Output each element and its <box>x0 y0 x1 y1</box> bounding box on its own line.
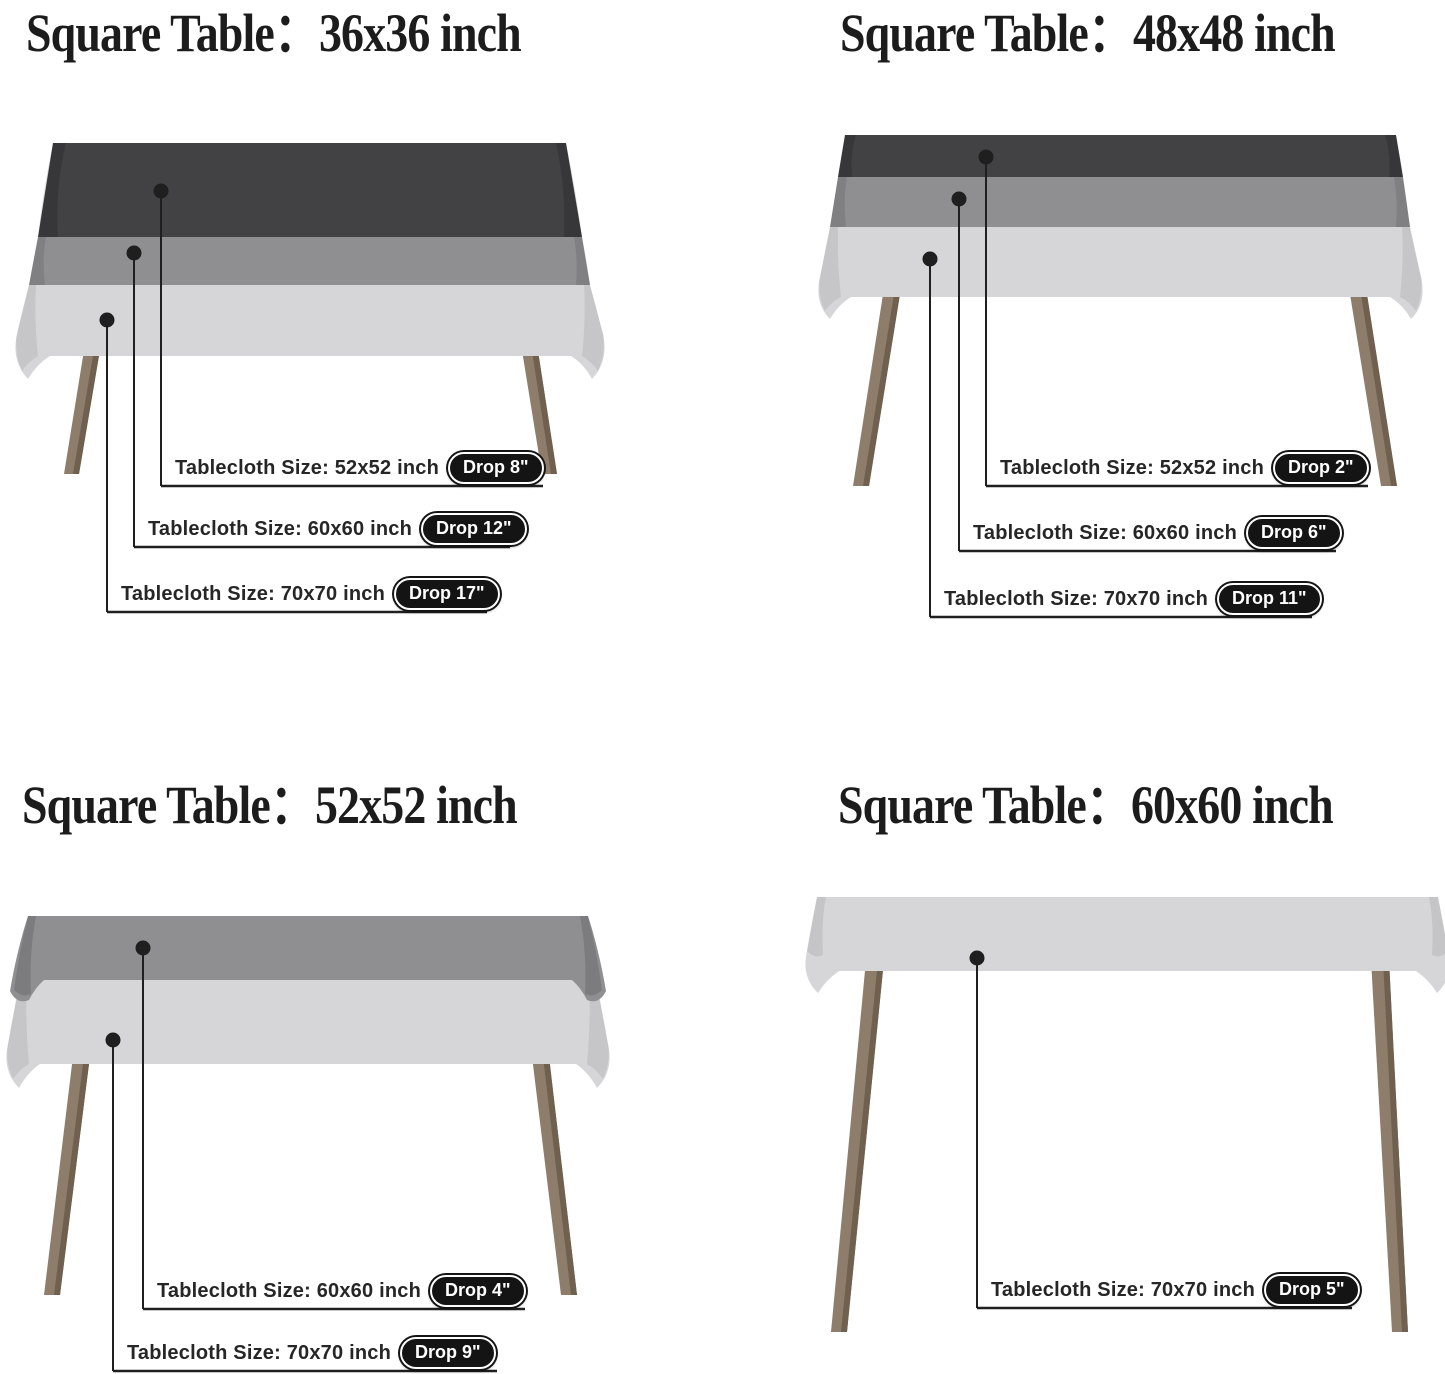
table-60x60 <box>805 897 1445 1332</box>
table-48x48 <box>818 135 1422 486</box>
drop-badge: Drop 2" <box>1273 452 1369 484</box>
callout-dot <box>106 1033 120 1047</box>
table-52x52 <box>6 916 609 1295</box>
tablecloth-size-text: Tablecloth Size: 60x60 inch <box>973 522 1237 545</box>
drop-badge: Drop 8" <box>448 452 544 484</box>
cloth-70x70 <box>6 980 609 1088</box>
tablecloth-size-guide: Square Table：36x36 inch Square Table：48x… <box>0 0 1445 1374</box>
cloth-60x60-fold-left <box>29 237 46 285</box>
cloth-60x60 <box>830 177 1410 227</box>
callouts-60x60 <box>970 951 1352 1308</box>
callout-dot <box>154 184 168 198</box>
tablecloth-size-text: Tablecloth Size: 70x70 inch <box>991 1279 1255 1302</box>
cloth-70x70 <box>805 897 1445 993</box>
tablecloth-size-text: Tablecloth Size: 60x60 inch <box>157 1280 421 1303</box>
cloth-70x70-fold-right <box>1400 227 1421 311</box>
callout-dot <box>100 313 114 327</box>
tablecloth-size-text: Tablecloth Size: 70x70 inch <box>121 583 385 606</box>
tablecloth-size-text: Tablecloth Size: 52x52 inch <box>175 457 439 480</box>
callout-label: Tablecloth Size: 60x60 inch Drop 12" <box>148 513 527 545</box>
callout-label: Tablecloth Size: 52x52 inch Drop 8" <box>175 452 544 484</box>
callout-dot <box>952 192 966 206</box>
drop-badge: Drop 11" <box>1217 583 1322 615</box>
cloth-60x60-fold-left <box>830 177 847 227</box>
drop-badge: Drop 12" <box>421 513 527 545</box>
panel-title-36x36: Square Table：36x36 inch <box>26 6 521 60</box>
callout-label: Tablecloth Size: 52x52 inch Drop 2" <box>1000 452 1369 484</box>
cloth-70x70 <box>15 285 604 379</box>
cloth-60x60 <box>29 237 590 285</box>
panel-title-60x60: Square Table：60x60 inch <box>838 778 1333 832</box>
panel-title-52x52: Square Table：52x52 inch <box>22 778 517 832</box>
callout-dot <box>136 941 150 955</box>
size-guide-illustration <box>0 0 1445 1374</box>
callout-dot <box>923 252 937 266</box>
drop-badge: Drop 6" <box>1246 517 1342 549</box>
callout-label: Tablecloth Size: 70x70 inch Drop 9" <box>127 1337 496 1369</box>
callout-label: Tablecloth Size: 70x70 inch Drop 11" <box>944 583 1322 615</box>
tablecloth-size-text: Tablecloth Size: 70x70 inch <box>944 588 1208 611</box>
panel-title-48x48: Square Table：48x48 inch <box>840 6 1335 60</box>
callout-label: Tablecloth Size: 60x60 inch Drop 6" <box>973 517 1342 549</box>
tablecloth-size-text: Tablecloth Size: 60x60 inch <box>148 518 412 541</box>
drop-badge: Drop 9" <box>400 1337 496 1369</box>
callout-dot <box>970 951 984 965</box>
callout-dot <box>979 150 993 164</box>
callout-label: Tablecloth Size: 60x60 inch Drop 4" <box>157 1275 526 1307</box>
drop-badge: Drop 4" <box>430 1275 526 1307</box>
table-36x36 <box>15 143 604 474</box>
tablecloth-size-text: Tablecloth Size: 52x52 inch <box>1000 457 1264 480</box>
drop-badge: Drop 17" <box>394 578 500 610</box>
cloth-70x70 <box>818 227 1422 319</box>
drop-badge: Drop 5" <box>1264 1274 1360 1306</box>
tablecloth-size-text: Tablecloth Size: 70x70 inch <box>127 1342 391 1365</box>
cloth-70x70-fold-left <box>16 285 38 371</box>
callout-label: Tablecloth Size: 70x70 inch Drop 17" <box>121 578 500 610</box>
callout-label: Tablecloth Size: 70x70 inch Drop 5" <box>991 1274 1360 1306</box>
cloth-52x52 <box>838 135 1403 177</box>
cloth-70x70-fold-right <box>582 285 604 371</box>
callout-dot <box>127 246 141 260</box>
cloth-52x52 <box>38 143 582 237</box>
cloth-70x70-fold-left <box>819 227 841 311</box>
